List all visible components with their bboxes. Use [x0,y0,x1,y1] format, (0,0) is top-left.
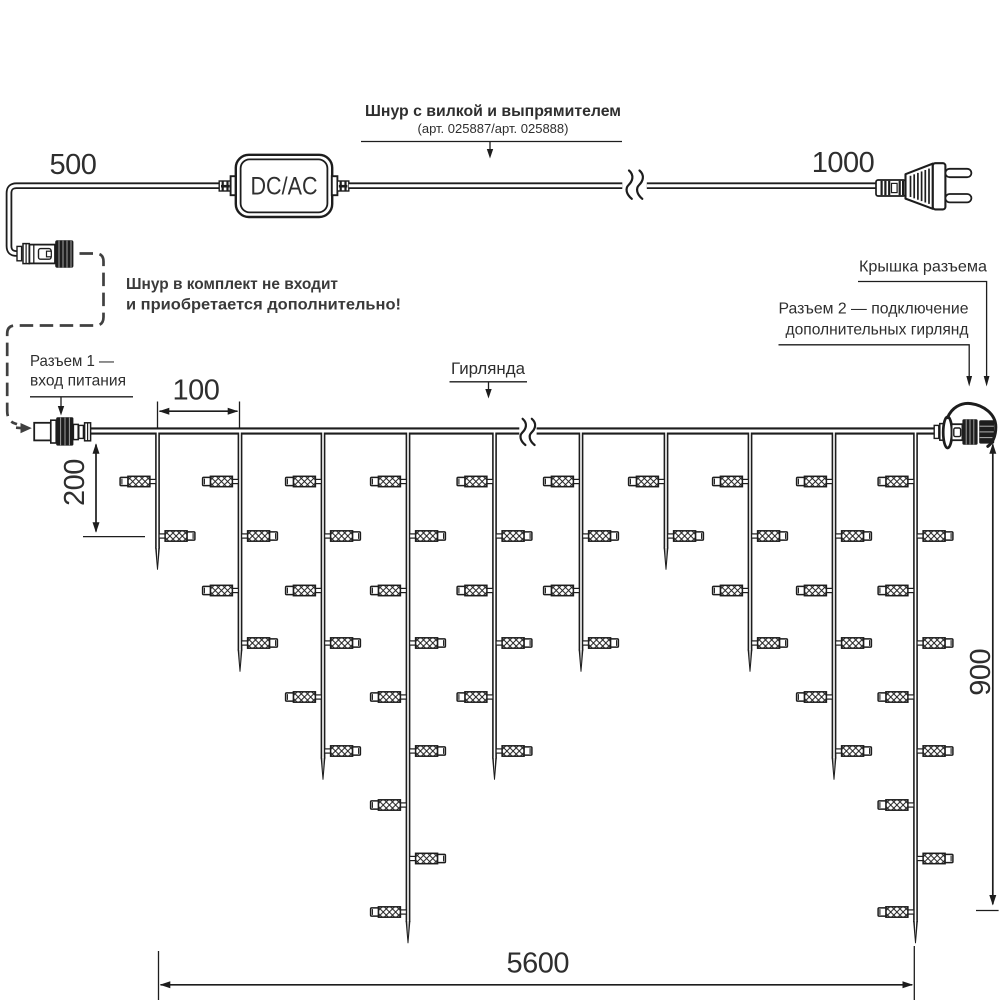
svg-text:DC/AC: DC/AC [251,173,318,201]
svg-text:Разъем 1 —: Разъем 1 — [30,353,114,370]
svg-text:500: 500 [50,149,97,181]
svg-text:и приобретается дополнительно!: и приобретается дополнительно! [126,297,401,314]
svg-text:дополнительных гирлянд: дополнительных гирлянд [786,322,970,339]
svg-text:вход питания: вход питания [30,373,126,390]
svg-text:900: 900 [965,649,997,696]
svg-text:100: 100 [173,375,220,407]
svg-text:Гирлянда: Гирлянда [451,360,526,378]
svg-text:5600: 5600 [507,948,570,980]
svg-text:Разъем 2 — подключение: Разъем 2 — подключение [779,301,969,318]
svg-text:Крышка разъема: Крышка разъема [859,259,987,276]
svg-text:Шнур в комплект не входит: Шнур в комплект не входит [126,276,338,293]
svg-text:(арт. 025887/арт. 025888): (арт. 025887/арт. 025888) [418,122,569,136]
svg-text:Шнур с вилкой и выпрямителем: Шнур с вилкой и выпрямителем [365,103,621,120]
svg-text:200: 200 [59,459,91,506]
svg-text:1000: 1000 [812,147,875,179]
